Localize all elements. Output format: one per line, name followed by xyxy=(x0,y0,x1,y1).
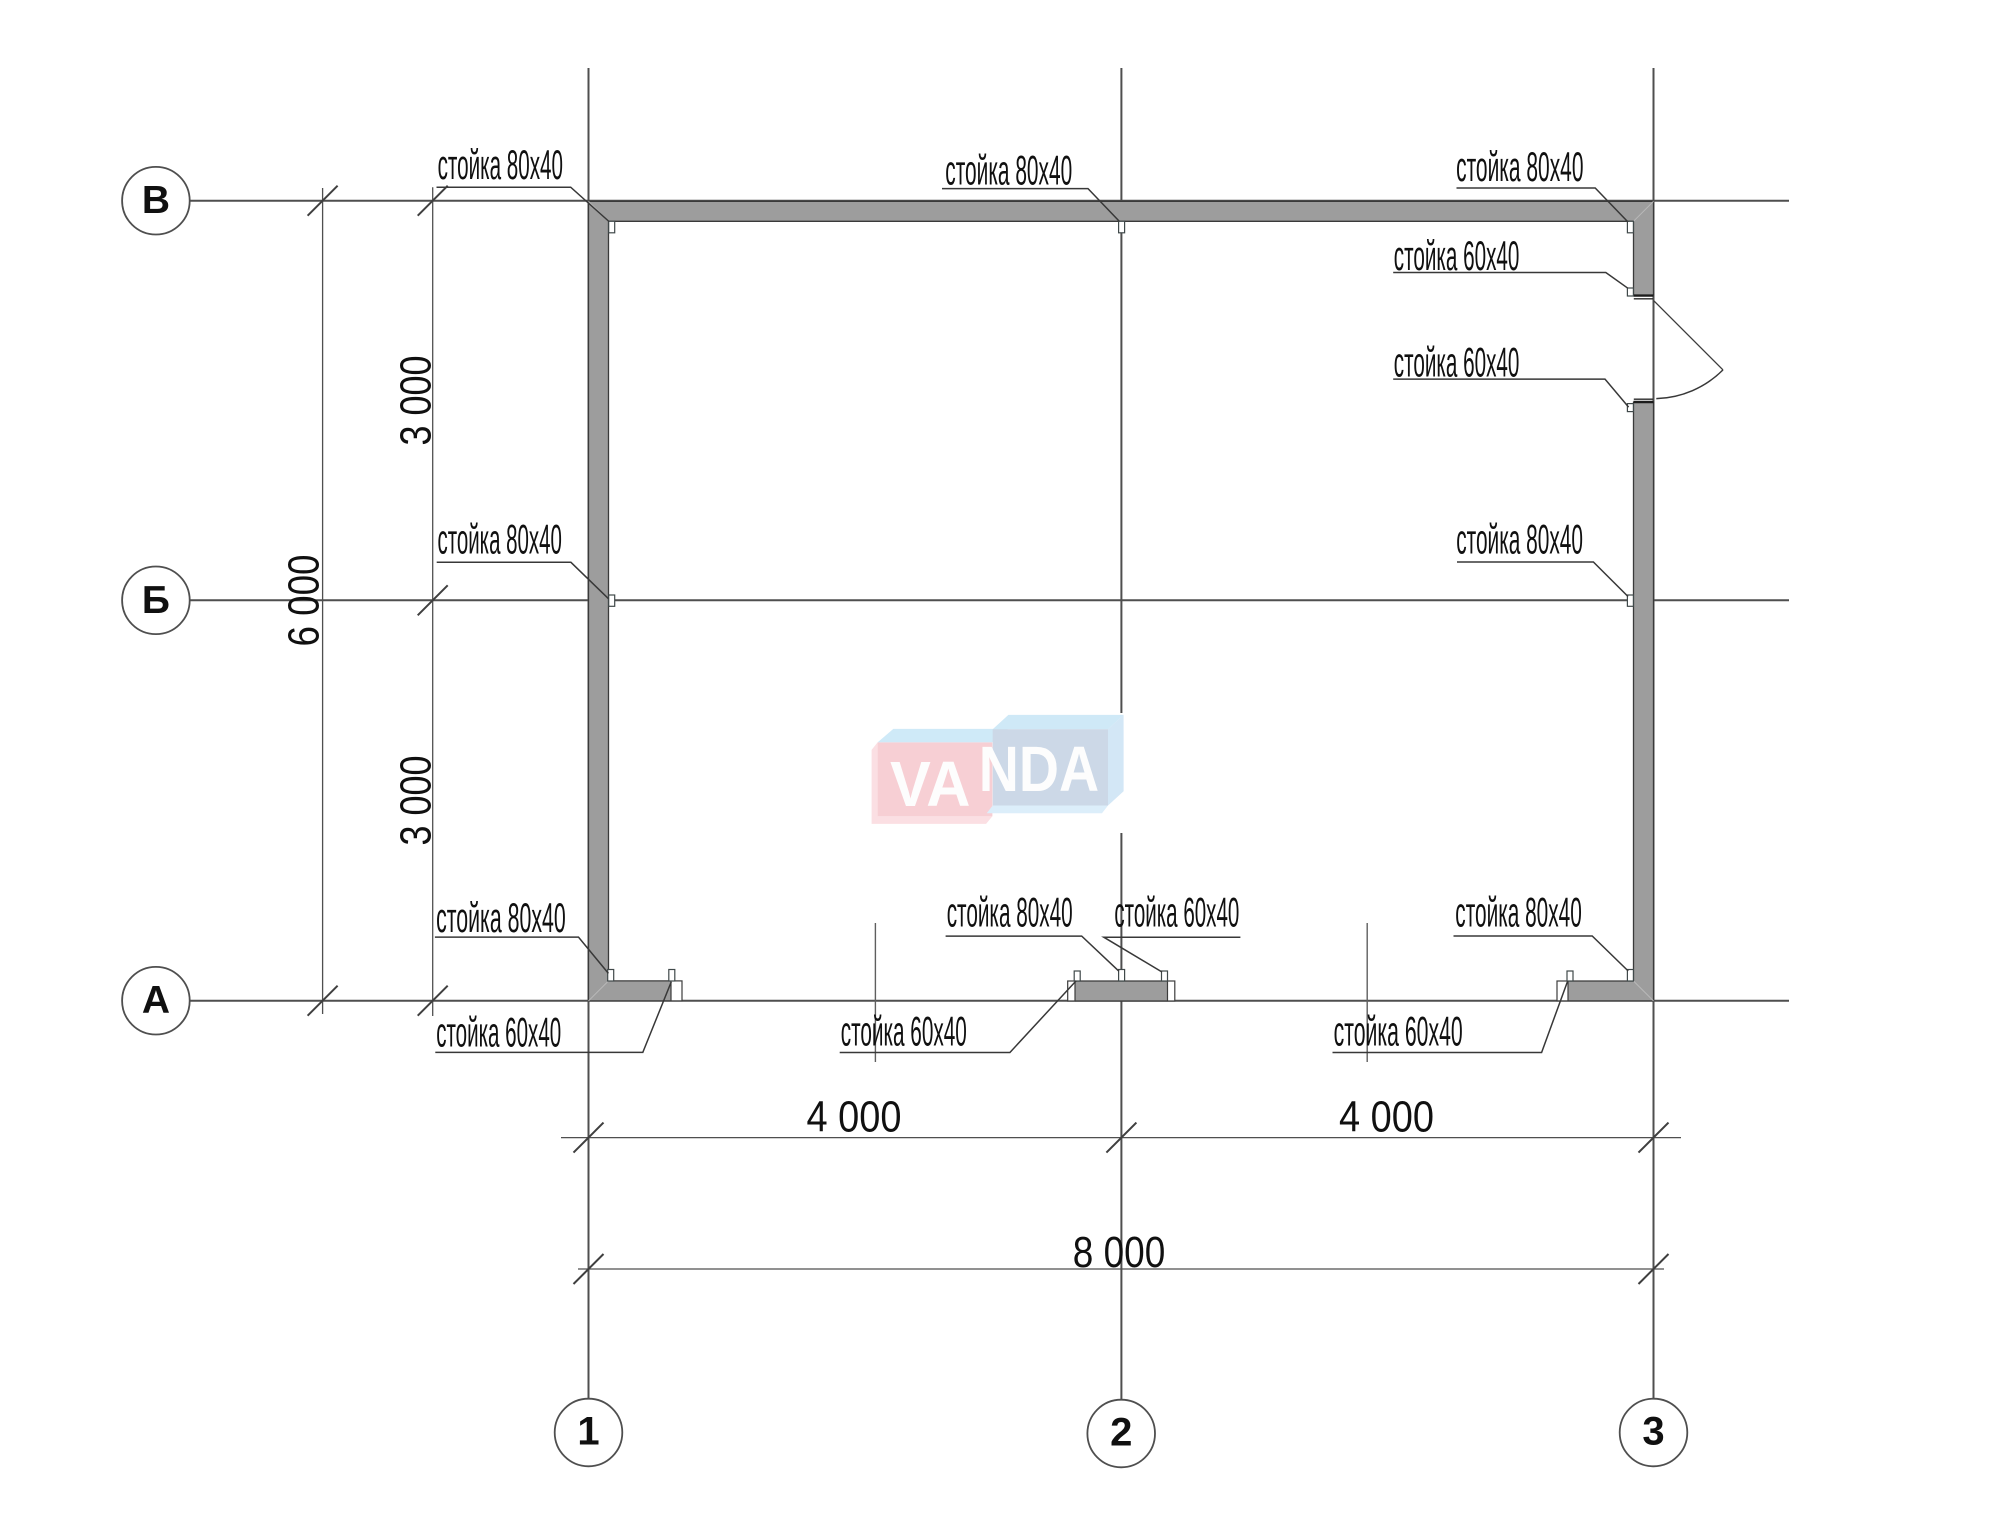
svg-text:стойка 80х40: стойка 80х40 xyxy=(438,516,562,563)
svg-text:4 000: 4 000 xyxy=(807,1094,902,1142)
svg-text:стойка 80х40: стойка 80х40 xyxy=(1456,143,1583,190)
svg-text:1: 1 xyxy=(577,1410,599,1454)
svg-text:стойка 60х40: стойка 60х40 xyxy=(1114,889,1239,936)
svg-text:3 000: 3 000 xyxy=(393,356,441,446)
svg-text:стойка 60х40: стойка 60х40 xyxy=(1334,1008,1463,1055)
svg-text:А: А xyxy=(142,979,170,1022)
svg-text:стойка 60х40: стойка 60х40 xyxy=(436,1009,561,1056)
svg-text:Б: Б xyxy=(142,579,170,622)
svg-text:стойка 80х40: стойка 80х40 xyxy=(945,147,1072,194)
svg-text:NDA: NDA xyxy=(979,733,1099,805)
svg-text:3: 3 xyxy=(1642,1410,1664,1454)
svg-text:VA: VA xyxy=(890,748,971,820)
svg-text:стойка 80х40: стойка 80х40 xyxy=(947,889,1073,936)
svg-text:3 000: 3 000 xyxy=(393,756,441,846)
svg-text:8 000: 8 000 xyxy=(1073,1229,1166,1277)
svg-text:стойка 80х40: стойка 80х40 xyxy=(1456,516,1583,563)
svg-text:4 000: 4 000 xyxy=(1339,1094,1434,1142)
svg-text:стойка 80х40: стойка 80х40 xyxy=(1455,889,1582,936)
svg-text:2: 2 xyxy=(1110,1411,1132,1455)
svg-text:стойка 80х40: стойка 80х40 xyxy=(436,894,566,941)
svg-text:В: В xyxy=(142,179,170,222)
svg-text:6 000: 6 000 xyxy=(280,555,328,647)
svg-text:стойка 60х40: стойка 60х40 xyxy=(841,1008,967,1055)
svg-text:стойка 80х40: стойка 80х40 xyxy=(438,141,563,188)
